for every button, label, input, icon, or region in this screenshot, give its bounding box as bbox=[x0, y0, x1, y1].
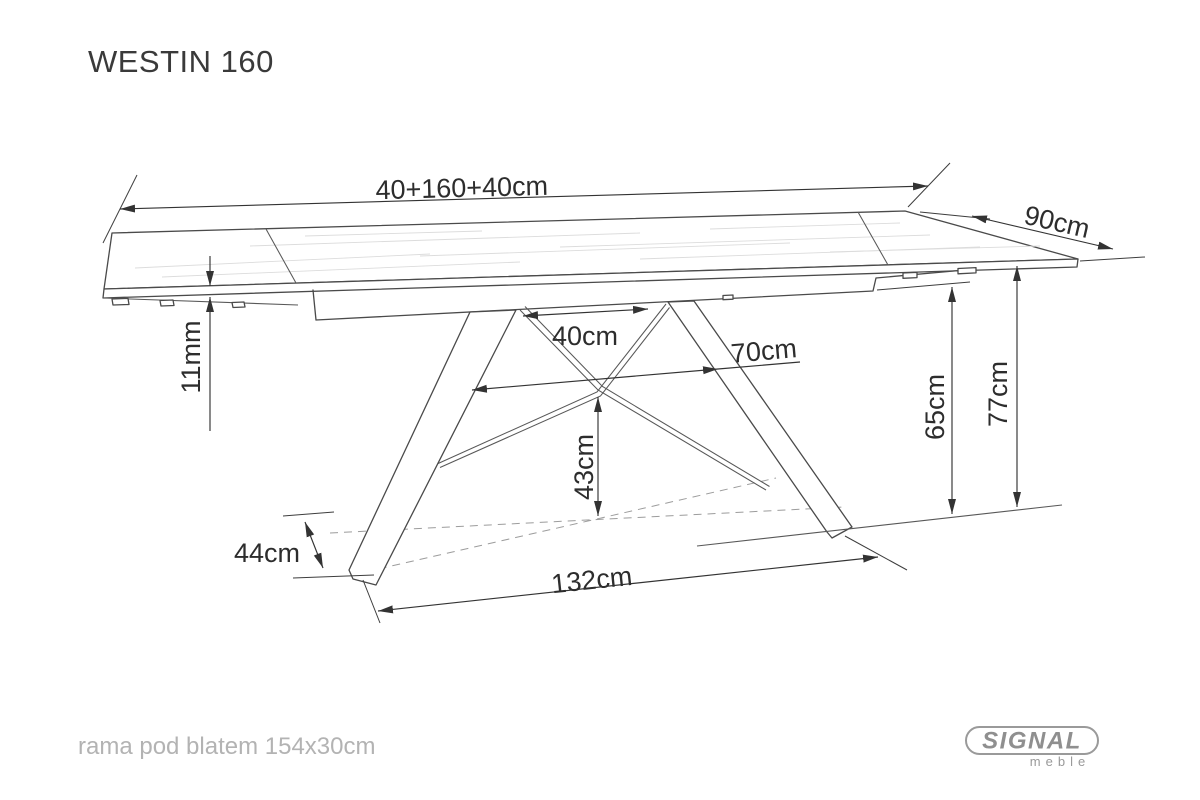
dimension-drawing: WESTIN 160 bbox=[0, 0, 1200, 800]
logo-subbrand-text: meble bbox=[1030, 754, 1090, 769]
dim-label-table-height: 77cm bbox=[983, 361, 1013, 427]
dim-label-base-span: 132cm bbox=[550, 561, 634, 599]
apron-notch bbox=[723, 295, 733, 300]
underside-tab bbox=[903, 272, 917, 278]
floor-line bbox=[697, 505, 1062, 546]
logo-brand-text: SIGNAL bbox=[982, 728, 1082, 755]
leaf-underside-clips bbox=[103, 298, 298, 308]
dim-underframe-height: 65cm bbox=[877, 282, 970, 514]
dim-label-total-width: 40+160+40cm bbox=[375, 171, 548, 206]
dim-label-depth: 90cm bbox=[1021, 200, 1092, 244]
front-left-leg bbox=[349, 310, 516, 585]
page-title: WESTIN 160 bbox=[88, 44, 274, 79]
dim-label-foot-length: 44cm bbox=[234, 538, 300, 568]
frame-note: rama pod blatem 154x30cm bbox=[78, 733, 376, 760]
dim-label-underframe-height: 65cm bbox=[920, 374, 950, 440]
dim-label-thickness: 11mm bbox=[176, 320, 206, 393]
dim-label-node-height: 43cm bbox=[569, 434, 599, 500]
brand-logo: SIGNAL meble bbox=[966, 727, 1098, 769]
technical-drawing-page: WESTIN 160 bbox=[0, 0, 1200, 800]
dim-label-frame-mid: 70cm bbox=[730, 333, 798, 369]
dim-node-height: 43cm bbox=[569, 397, 599, 516]
underside-tab bbox=[958, 268, 976, 274]
dim-label-frame-top: 40cm bbox=[552, 321, 618, 351]
dim-table-height: 77cm bbox=[983, 266, 1017, 507]
dim-frame-top: 40cm bbox=[523, 309, 648, 351]
tabletop bbox=[103, 211, 1078, 308]
dim-base-span: 132cm bbox=[363, 536, 907, 623]
